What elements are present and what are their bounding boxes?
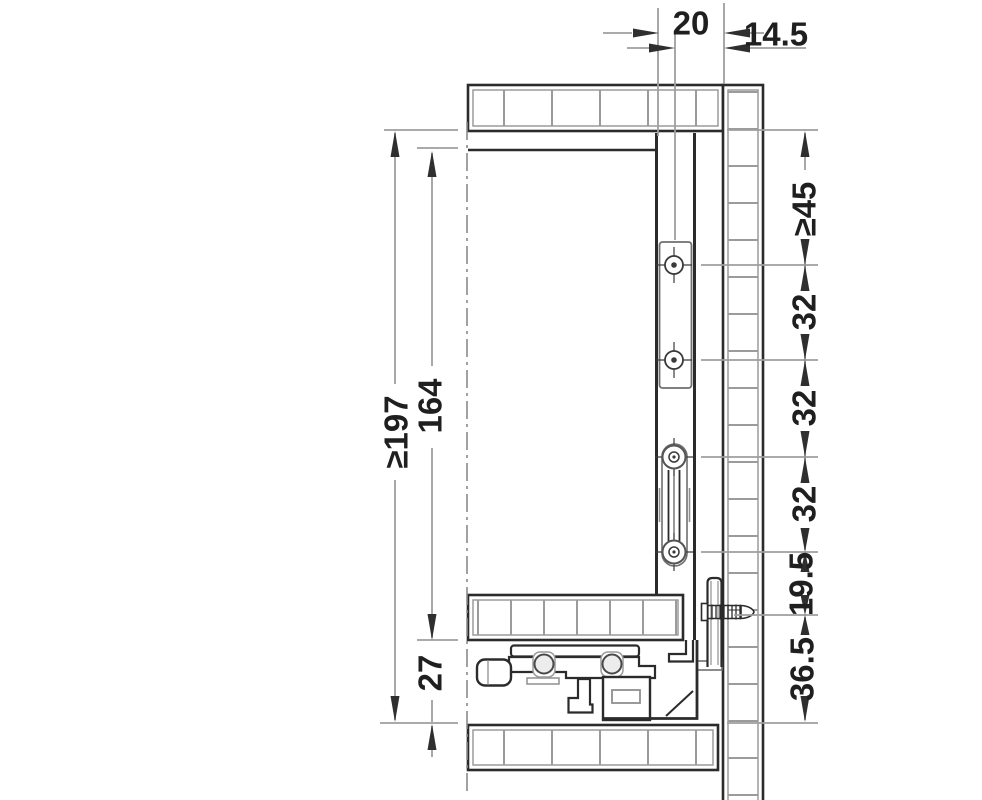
- arrow-27-bottom: [428, 724, 437, 750]
- cabinet-bottom-panel: [468, 725, 718, 770]
- runner-hook: [569, 679, 593, 713]
- arrow-265-up-side: [801, 239, 810, 265]
- rail-end-inner: [612, 690, 640, 703]
- screw2-center: [672, 550, 675, 553]
- dim-label-36-5: 36.5: [784, 637, 821, 701]
- runner-lower-plate: [509, 657, 655, 678]
- drawer-bottom-hatch: [473, 600, 678, 635]
- arrow-164-bottom: [428, 614, 437, 640]
- dim-label-19-5: 19.5: [783, 552, 820, 616]
- roller-pin-1: [535, 655, 554, 674]
- right-panel-hatch: [728, 90, 758, 800]
- dim-label-164: 164: [412, 378, 449, 434]
- connector-link-lower: [655, 438, 693, 571]
- top-panel: [468, 85, 723, 131]
- arrow-615-down-side: [801, 615, 810, 635]
- arrow-360-up-side: [801, 334, 810, 360]
- roller-pin-2: [603, 655, 622, 674]
- dim-label-20: 20: [673, 5, 710, 42]
- technical-drawing-page: 20 14.5 ≥197 164 27 ≥45 32 32 32 19.5 36…: [0, 0, 982, 800]
- arrow-164-top: [428, 151, 437, 177]
- dim-label-27: 27: [412, 655, 449, 692]
- dim-label-197: ≥197: [378, 395, 415, 468]
- arrow-265-down-side: [801, 265, 810, 291]
- arrow-552-up-side: [801, 528, 810, 552]
- arrow-20-left: [633, 29, 659, 38]
- drawing-canvas: 20 14.5 ≥197 164 27 ≥45 32 32 32 19.5 36…: [0, 0, 982, 800]
- arrow-457-down-side: [801, 457, 810, 483]
- right-panel: [723, 85, 763, 800]
- fixing-screw-head: [702, 604, 708, 621]
- arrow-45-top: [801, 131, 810, 157]
- arrow-197-top: [391, 131, 400, 157]
- rail-bottom-hook: [669, 640, 693, 662]
- dim-label-14-5: 14.5: [744, 16, 808, 53]
- arrow-14-5-left: [649, 44, 675, 53]
- drawer-bottom-panel: [468, 595, 683, 640]
- top-panel-hatch: [473, 90, 718, 126]
- hole2-center: [671, 357, 677, 363]
- runner-bumper: [477, 660, 511, 686]
- dim-label-32b: 32: [786, 390, 823, 427]
- mounting-bracket-upper: [656, 242, 692, 388]
- hole1-center: [671, 262, 677, 268]
- screw1-center: [672, 455, 675, 458]
- drawer-side-profile: [468, 133, 695, 640]
- cabinet-bottom-hatch: [473, 730, 713, 765]
- dim-label-45: ≥45: [786, 182, 823, 237]
- arrow-457-up-side: [801, 431, 810, 457]
- dim-label-32a: 32: [786, 294, 823, 331]
- arrow-197-bottom: [391, 696, 400, 722]
- corner-gusset-diagonal: [666, 691, 693, 716]
- bracket-flange: [708, 578, 722, 667]
- dim-label-32c: 32: [786, 486, 823, 523]
- runner-tab: [527, 678, 559, 684]
- slide-mechanism: [477, 640, 697, 720]
- arrow-360-down-side: [801, 360, 810, 386]
